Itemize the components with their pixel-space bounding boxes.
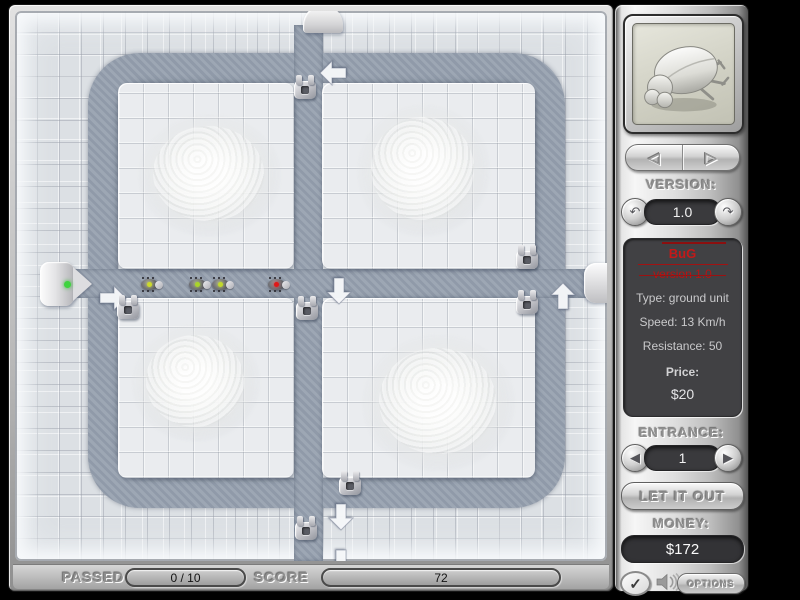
passed-label: PASSED [62, 569, 125, 585]
score-label: SCORE [254, 569, 309, 585]
passed-value: 0 / 10 [170, 571, 200, 585]
direction-arrow-up [550, 282, 576, 310]
let-it-out-label: LET IT OUT [639, 488, 725, 504]
passed-value-field: 0 / 10 [125, 568, 246, 587]
version-up-button[interactable]: ↷ [714, 198, 742, 226]
unit-nav-bar: ◁ ▷ [625, 144, 740, 171]
version-value: 1.0 [673, 204, 692, 220]
game-board[interactable] [15, 11, 607, 561]
unit-speed: Speed: 13 Km/h [639, 315, 725, 329]
money-value: $172 [666, 541, 699, 558]
unit-resistance: Resistance: 50 [643, 339, 722, 353]
prev-unit-button[interactable]: ◁ [626, 145, 683, 170]
prev-icon: ◁ [648, 149, 660, 167]
tower[interactable] [294, 296, 320, 322]
direction-arrow-down [328, 549, 354, 561]
version-down-icon: ↶ [630, 204, 641, 220]
info-divider [638, 264, 728, 265]
unit-name: BuG [669, 246, 696, 261]
price-value: $20 [671, 386, 694, 402]
next-icon: ▷ [705, 149, 717, 167]
board-sprites [15, 11, 607, 561]
price-label: Price: [666, 365, 699, 379]
options-button[interactable]: OPTIONS [677, 573, 745, 594]
entrance-next-icon: ▶ [723, 450, 733, 466]
bug-enemy [141, 278, 163, 291]
entrance-value: 1 [679, 450, 687, 466]
status-bar: PASSED 0 / 10 SCORE 72 [13, 564, 609, 589]
unit-version: version 1.0 [647, 267, 718, 281]
tower[interactable] [514, 290, 540, 316]
unit-preview-image [632, 23, 735, 125]
tower[interactable] [514, 245, 540, 271]
entrance-label: ENTRANCE: [615, 425, 748, 440]
tower[interactable] [115, 295, 141, 321]
direction-arrow-left [319, 60, 347, 86]
entrance-value-field: 1 [644, 445, 721, 471]
sound-toggle-button[interactable] [655, 572, 679, 592]
entrance-selector: ◀ 1 ▶ [621, 444, 742, 470]
tower[interactable] [293, 516, 319, 542]
money-label: MONEY: [615, 516, 748, 531]
version-value-field: 1.0 [644, 199, 721, 225]
direction-arrow-down [328, 503, 354, 531]
bug-enemy [189, 278, 211, 291]
version-up-icon: ↷ [723, 204, 734, 220]
tower[interactable] [337, 471, 363, 497]
entrance-prev-icon: ◀ [630, 450, 640, 466]
entrance-next-button[interactable]: ▶ [714, 444, 742, 472]
beetle-icon [636, 28, 732, 120]
confirm-check-button[interactable]: ✓ [620, 571, 651, 596]
unit-preview-frame [623, 14, 744, 134]
score-value-field: 72 [321, 568, 561, 587]
check-icon: ✓ [629, 575, 642, 593]
game-window: PASSED 0 / 10 SCORE 72 [8, 4, 614, 592]
version-selector: ↶ 1.0 ↷ [621, 198, 742, 224]
bug-enemy [268, 278, 290, 291]
let-it-out-button[interactable]: LET IT OUT [621, 482, 744, 510]
sidebar: ◁ ▷ VERSION: ↶ 1.0 ↷ BuG version 1.0 Typ… [614, 4, 749, 592]
version-label: VERSION: [615, 177, 748, 192]
info-top-line [662, 242, 726, 244]
unit-type: Type: ground unit [636, 291, 729, 305]
money-value-field: $172 [621, 535, 744, 563]
unit-info-panel: BuG version 1.0 Type: ground unit Speed:… [623, 238, 742, 417]
bug-enemy [212, 278, 234, 291]
tower[interactable] [292, 75, 318, 101]
options-label: OPTIONS [687, 579, 735, 589]
direction-arrow-down [326, 277, 352, 305]
next-unit-button[interactable]: ▷ [683, 145, 739, 170]
score-value: 72 [434, 571, 447, 585]
speaker-icon [655, 572, 679, 592]
